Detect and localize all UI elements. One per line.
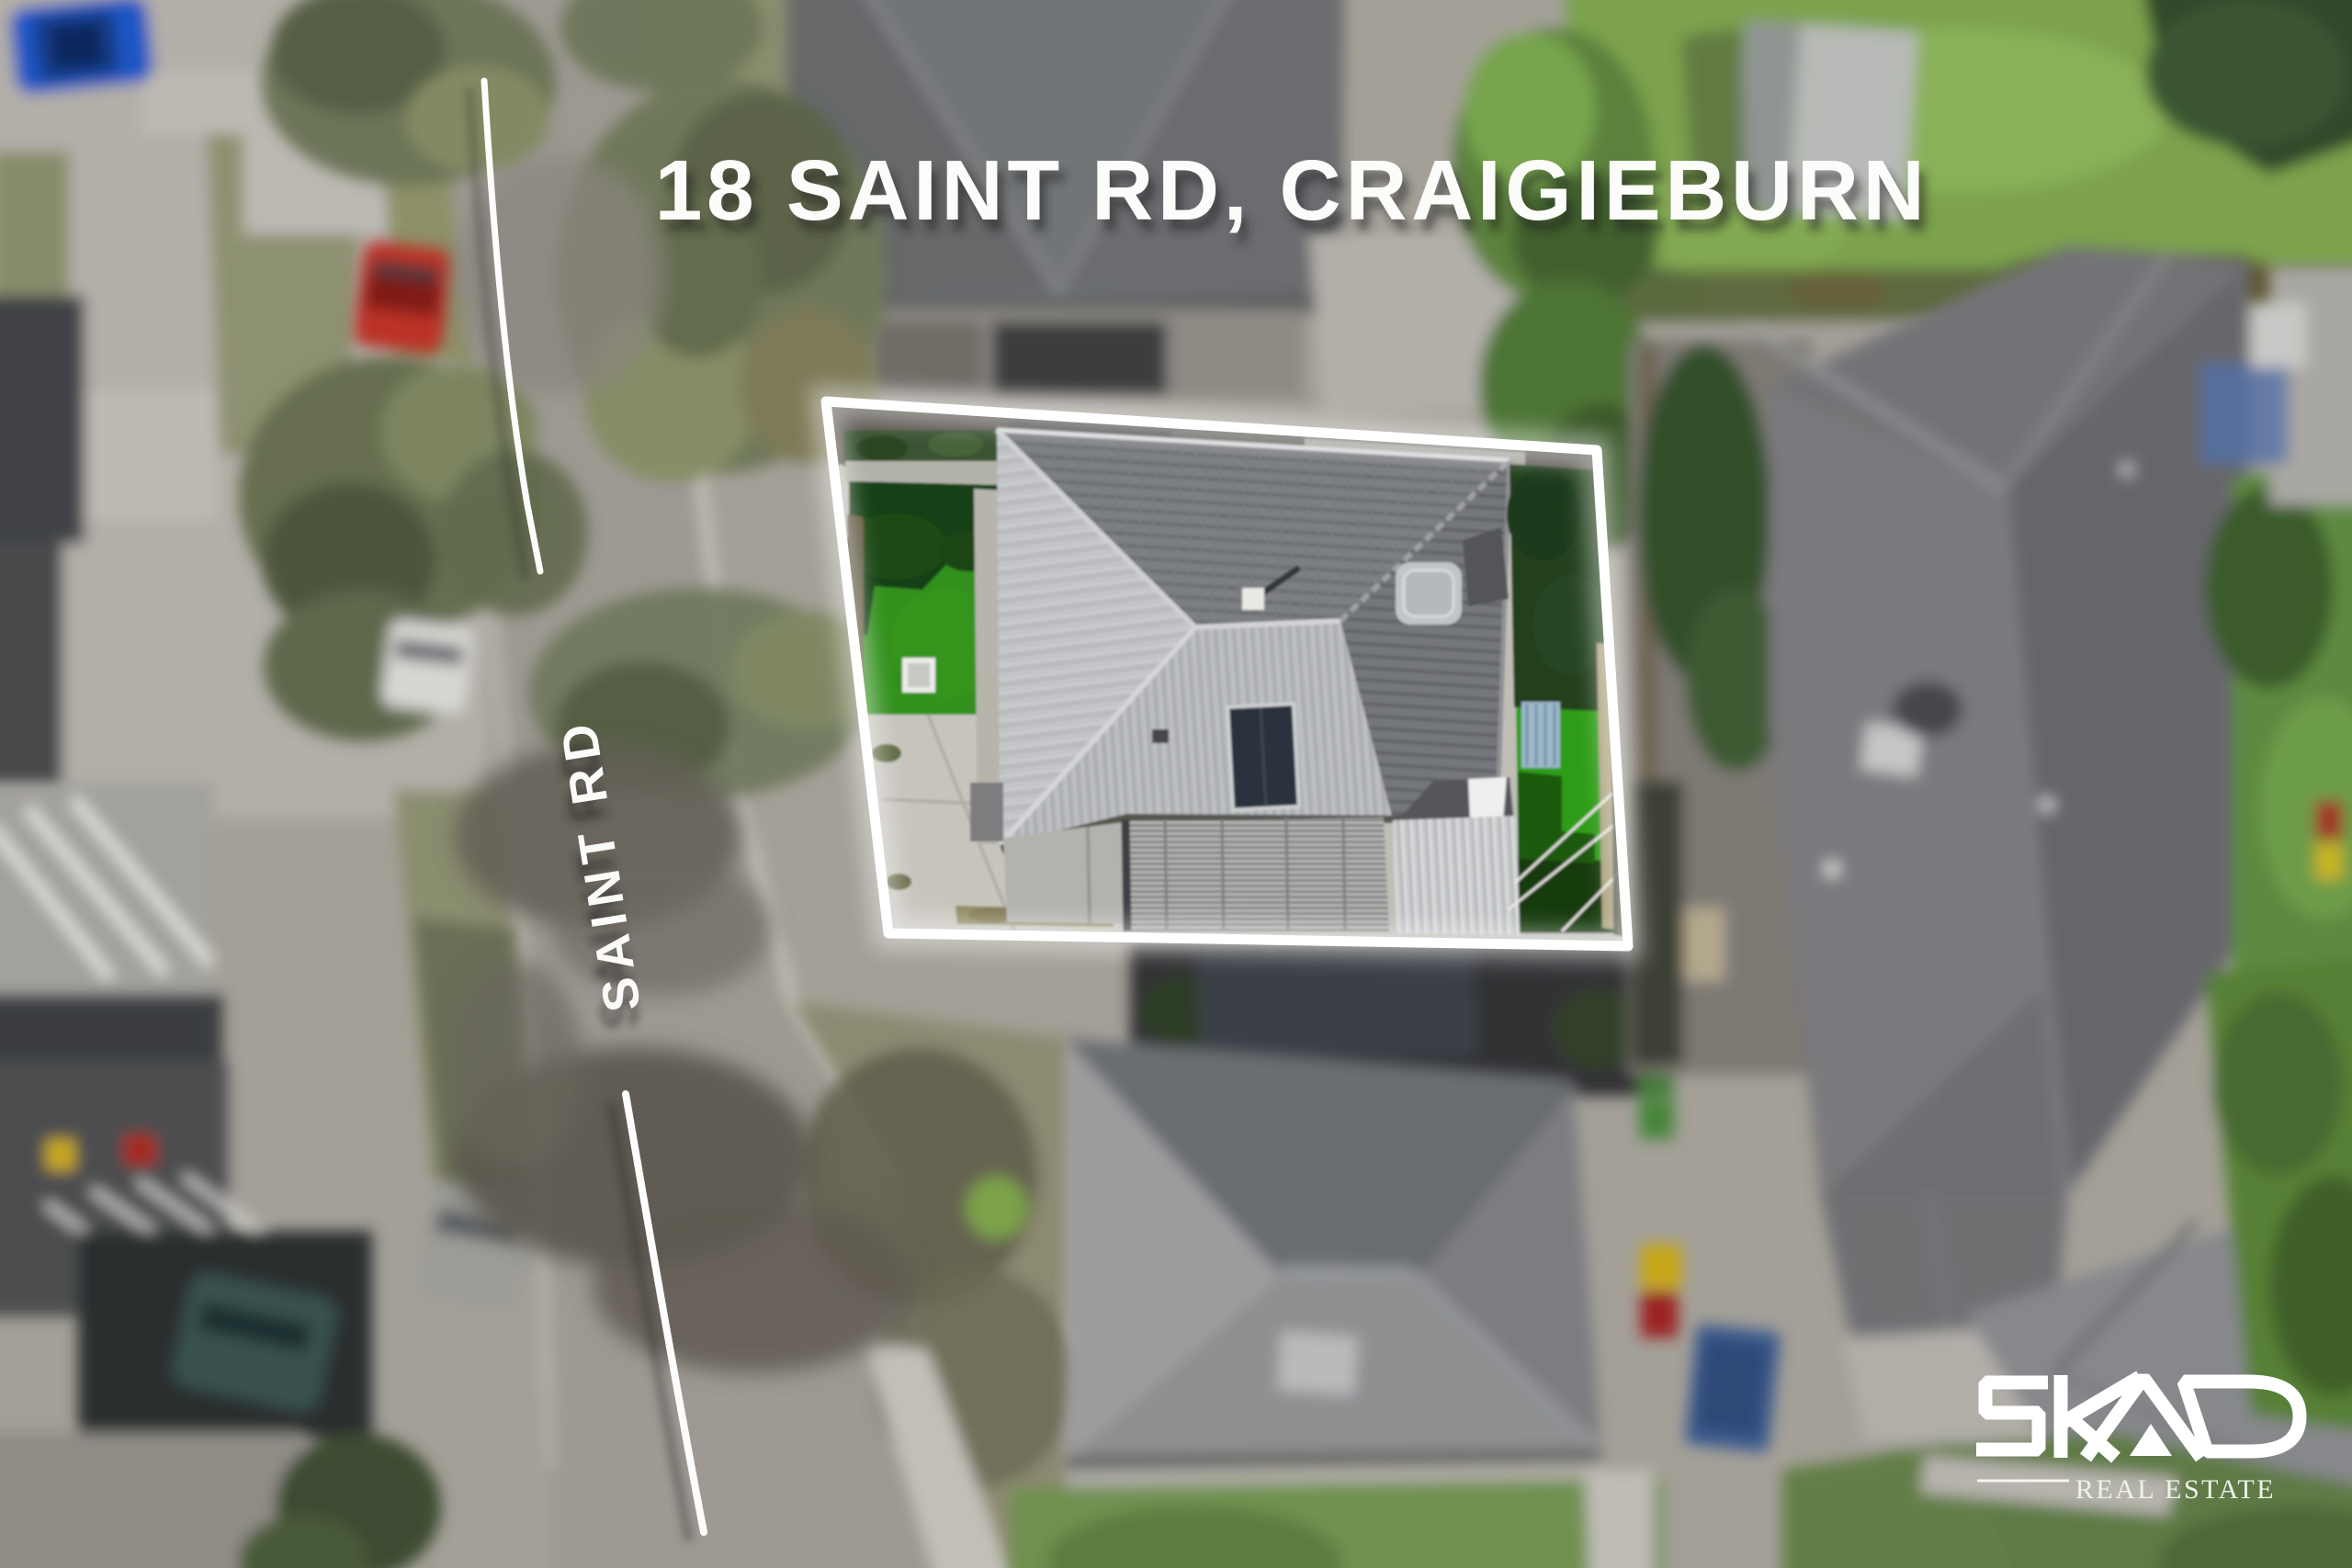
svg-text:REAL ESTATE: REAL ESTATE: [2075, 1474, 2276, 1505]
svg-text:18 SAINT RD, CRAIGIEBURN: 18 SAINT RD, CRAIGIEBURN: [655, 142, 1929, 238]
